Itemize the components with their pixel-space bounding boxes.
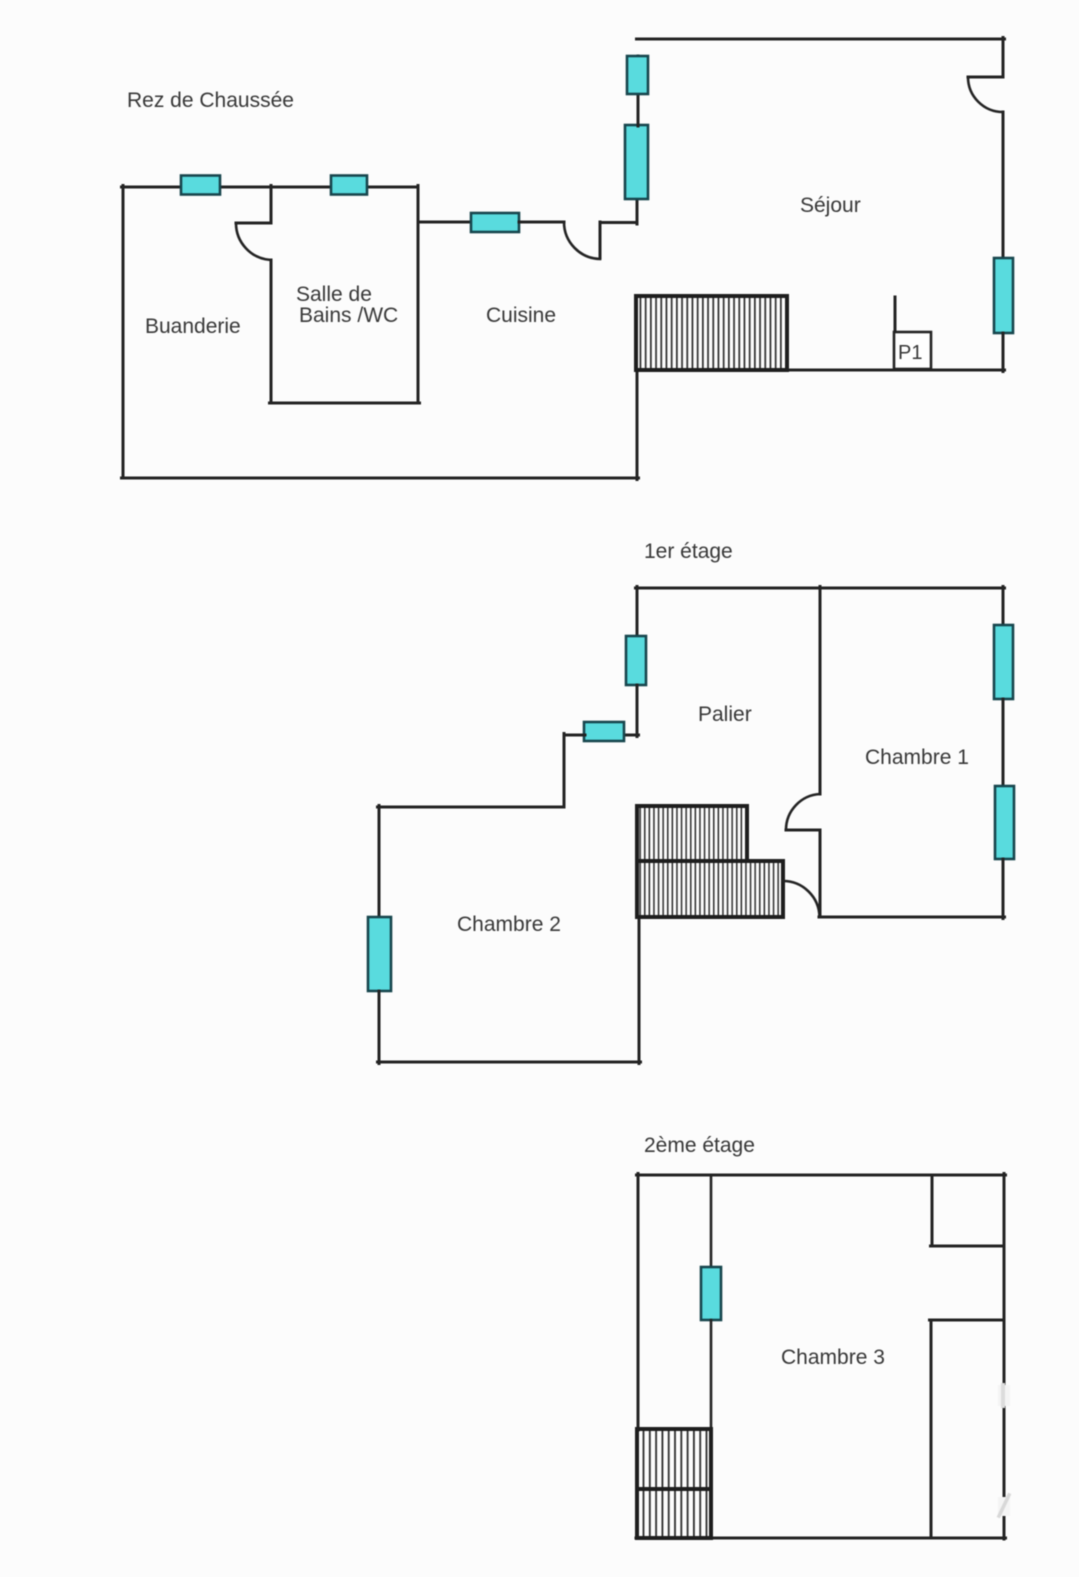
svg-text:Rez de Chaussée: Rez de Chaussée xyxy=(127,89,294,112)
svg-text:Bains /WC: Bains /WC xyxy=(299,304,398,327)
svg-text:Séjour: Séjour xyxy=(800,194,861,217)
svg-text:Chambre 3: Chambre 3 xyxy=(781,1346,885,1369)
svg-text:Palier: Palier xyxy=(698,703,752,726)
svg-text:Chambre 1: Chambre 1 xyxy=(865,746,969,769)
svg-text:Cuisine: Cuisine xyxy=(486,304,556,327)
svg-text:Salle de: Salle de xyxy=(296,283,372,306)
svg-text:P1: P1 xyxy=(898,342,922,364)
svg-text:Buanderie: Buanderie xyxy=(145,315,241,338)
svg-text:Chambre 2: Chambre 2 xyxy=(457,913,561,936)
svg-text:2ème étage: 2ème étage xyxy=(644,1134,755,1157)
svg-text:1er étage: 1er étage xyxy=(644,540,733,563)
